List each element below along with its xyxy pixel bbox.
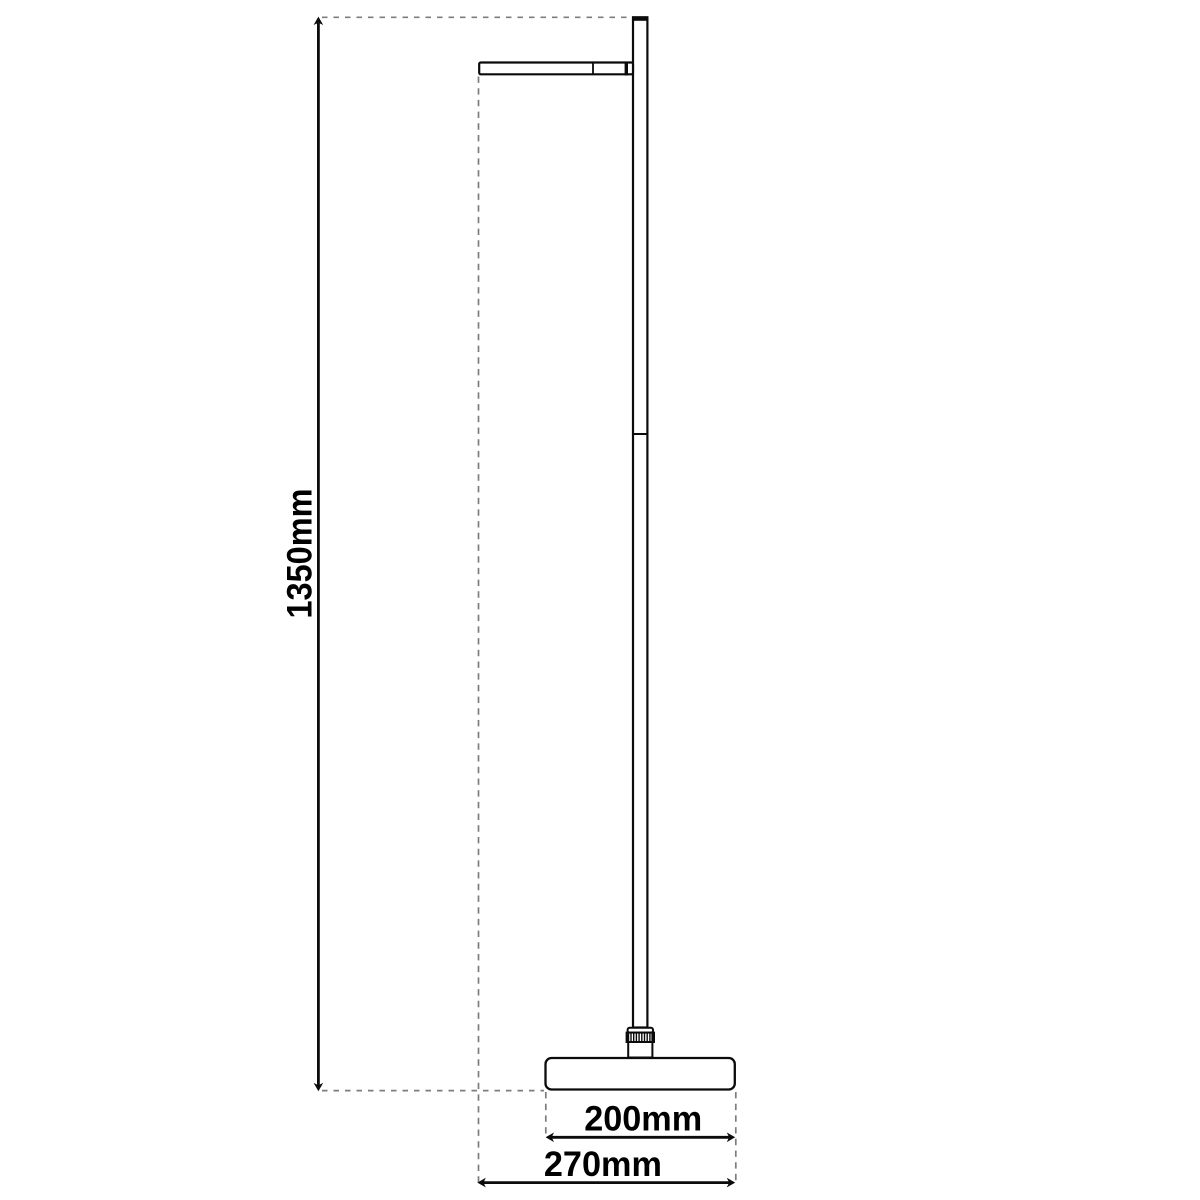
svg-text:270mm: 270mm <box>544 1145 662 1184</box>
svg-text:1350mm: 1350mm <box>280 489 319 619</box>
svg-text:200mm: 200mm <box>584 1099 702 1138</box>
